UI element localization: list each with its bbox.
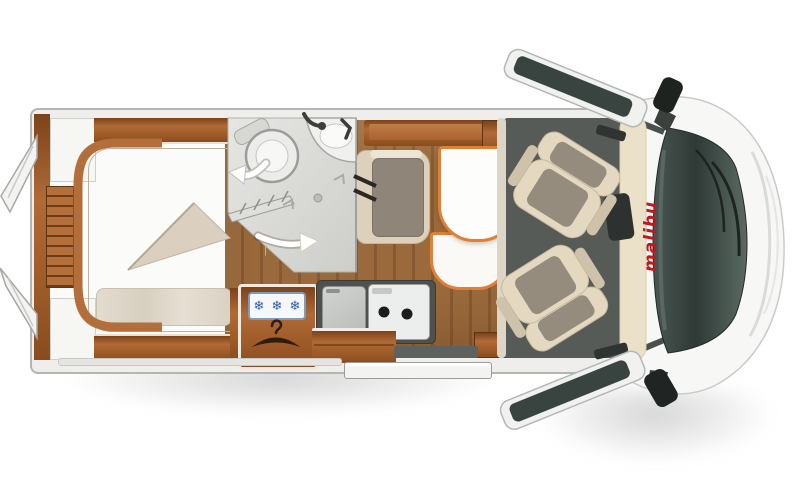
dinette-table	[438, 146, 516, 242]
bedroom-top-cabinet	[94, 118, 232, 144]
snowflake-icon: ❄	[254, 300, 265, 313]
snowflake-icon: ❄	[272, 300, 283, 313]
fridge-badge: ❄ ❄ ❄	[248, 292, 306, 320]
side-skirt-rail	[58, 358, 342, 366]
dinette-bench-headrest	[370, 150, 422, 158]
wiper	[712, 162, 739, 256]
door-side-cabinet	[474, 332, 514, 358]
wiper	[696, 150, 724, 232]
bed-pillows	[96, 288, 232, 326]
snowflake-icon: ❄	[290, 300, 301, 313]
bonnet-line	[764, 176, 778, 314]
kitchen-drawer-seam	[314, 344, 394, 346]
rear-shelf-unit	[46, 186, 74, 288]
entry-door-threshold	[394, 346, 478, 358]
floorplan-stage: ❄ ❄ ❄	[0, 0, 800, 487]
ground-shadow-cab	[535, 388, 775, 463]
bedroom-bottom-cabinet	[94, 334, 234, 360]
dinette-bench-cushion	[372, 158, 424, 237]
entry-step	[344, 362, 492, 379]
bonnet-line	[750, 152, 770, 336]
